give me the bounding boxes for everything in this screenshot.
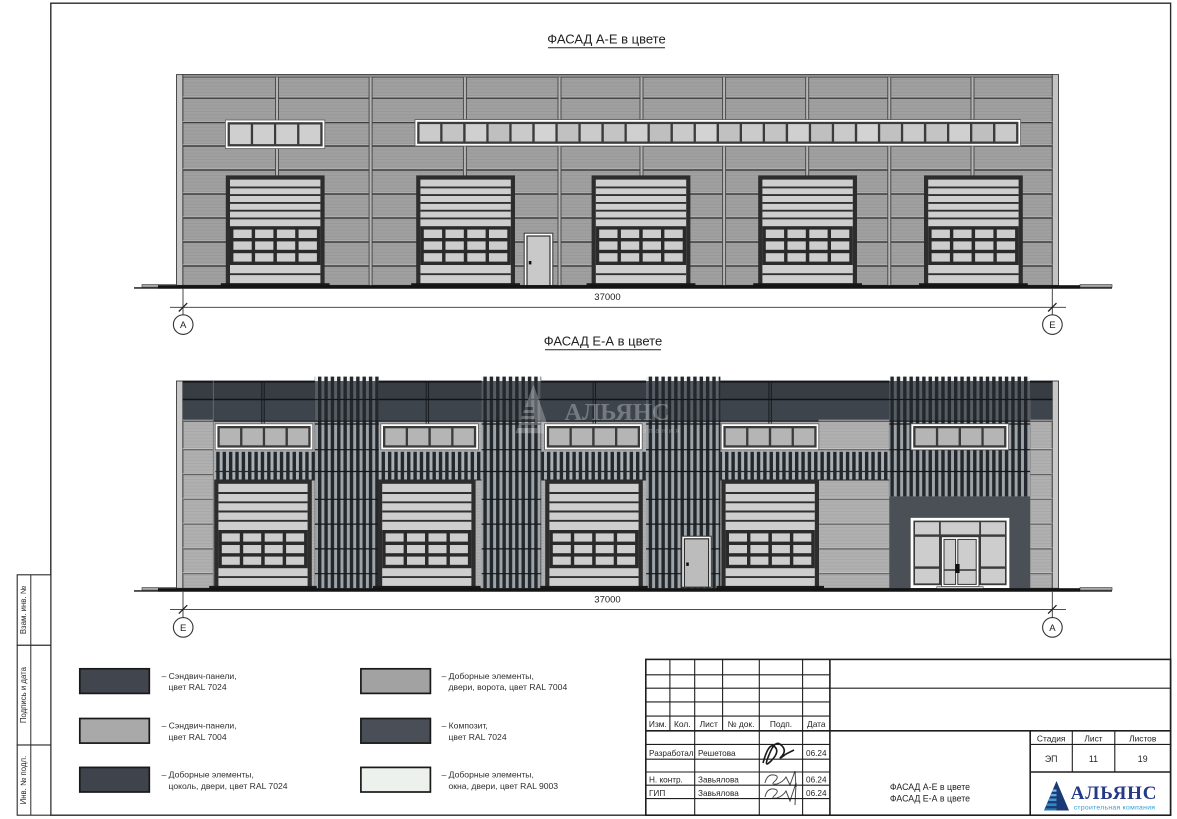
svg-text:– Композит,: – Композит,	[442, 721, 488, 731]
svg-text:06.24: 06.24	[806, 749, 827, 758]
svg-text:– Сэндвич-панели,: – Сэндвич-панели,	[162, 671, 237, 681]
svg-text:цвет RAL 7004: цвет RAL 7004	[169, 732, 227, 742]
svg-text:11: 11	[1089, 754, 1098, 764]
svg-text:цвет RAL 7024: цвет RAL 7024	[169, 682, 227, 692]
svg-text:Взам. инв. №: Взам. инв. №	[19, 586, 28, 634]
svg-text:Разработал: Разработал	[649, 749, 694, 758]
svg-text:ФАСАД Е-А в цвете: ФАСАД Е-А в цвете	[544, 334, 662, 349]
svg-text:ФАСАД А-Е в цвете: ФАСАД А-Е в цвете	[890, 782, 970, 792]
svg-text:ЭП: ЭП	[1045, 754, 1058, 764]
svg-text:Завьялова: Завьялова	[698, 775, 739, 784]
svg-text:06.24: 06.24	[806, 775, 827, 784]
svg-text:Подп.: Подп.	[770, 719, 792, 729]
svg-text:строительная компания: строительная компания	[1074, 804, 1156, 811]
svg-text:А: А	[1049, 623, 1056, 634]
svg-text:ГИП: ГИП	[649, 789, 665, 798]
svg-text:Кол.: Кол.	[674, 719, 691, 729]
svg-text:37000: 37000	[594, 594, 620, 605]
svg-text:Листов: Листов	[1129, 734, 1157, 744]
svg-text:– Доборные элементы,: – Доборные элементы,	[442, 770, 534, 780]
svg-text:Инв. № подл.: Инв. № подл.	[19, 756, 28, 805]
svg-text:37000: 37000	[594, 292, 620, 303]
svg-text:19: 19	[1138, 754, 1148, 764]
svg-text:АЛЬЯНС: АЛЬЯНС	[564, 399, 669, 426]
svg-text:цоколь, двери, цвет RAL 7024: цоколь, двери, цвет RAL 7024	[169, 781, 288, 791]
svg-text:ФАСАД А-Е в цвете: ФАСАД А-Е в цвете	[547, 32, 665, 47]
svg-text:Стадия: Стадия	[1037, 734, 1066, 744]
svg-text:Решетова: Решетова	[698, 749, 736, 758]
svg-text:№ док.: № док.	[728, 719, 755, 729]
svg-text:Лист: Лист	[1084, 734, 1102, 744]
svg-text:Лист: Лист	[700, 719, 718, 729]
svg-text:цвет RAL 7024: цвет RAL 7024	[449, 732, 507, 742]
svg-text:А: А	[180, 320, 187, 331]
svg-text:Подпись и дата: Подпись и дата	[19, 666, 28, 723]
svg-text:– Доборные элементы,: – Доборные элементы,	[162, 770, 254, 780]
svg-text:06.24: 06.24	[806, 789, 827, 798]
svg-text:АЛЬЯНС: АЛЬЯНС	[1071, 783, 1157, 804]
svg-text:Е: Е	[180, 623, 186, 634]
svg-text:Изм.: Изм.	[649, 719, 667, 729]
svg-text:двери, ворота, цвет RAL 7004: двери, ворота, цвет RAL 7004	[449, 682, 568, 692]
svg-text:Е: Е	[1049, 320, 1055, 331]
svg-text:Дата: Дата	[807, 719, 826, 729]
svg-text:ФАСАД Е-А в цвете: ФАСАД Е-А в цвете	[890, 794, 970, 804]
svg-text:окна, двери, цвет RAL 9003: окна, двери, цвет RAL 9003	[449, 781, 559, 791]
svg-text:– Сэндвич-панели,: – Сэндвич-панели,	[162, 721, 237, 731]
svg-text:Завьялова: Завьялова	[698, 789, 739, 798]
svg-text:Н. контр.: Н. контр.	[649, 775, 683, 784]
svg-text:– Доборные элементы,: – Доборные элементы,	[442, 671, 534, 681]
